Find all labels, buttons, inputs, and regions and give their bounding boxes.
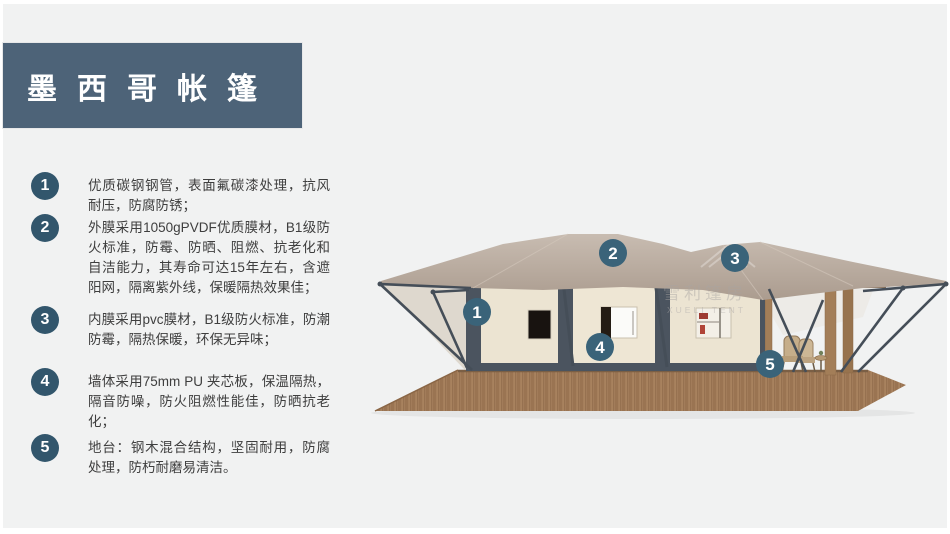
feature-item-4: 4 墙体采用75mm PU 夹芯板，保温隔热，隔音防噪，防火阻燃性能佳，防晒抗老…: [31, 368, 351, 432]
feature-item-3: 3 内膜采用pvc膜材，B1级防火标准，防潮防霉，隔热保暖，环保无异味；: [31, 306, 351, 350]
feature-text-1: 优质碳钢钢管，表面氟碳漆处理，抗风耐压，防腐防锈；: [88, 172, 330, 216]
feature-number-badge-2: 2: [31, 214, 59, 242]
svg-text:1: 1: [472, 303, 481, 322]
presentation-slide: 墨西哥帐篷 1 优质碳钢钢管，表面氟碳漆处理，抗风耐压，防腐防锈； 2 外膜采用…: [0, 0, 950, 534]
watermark-text-cn: 雪利篷房: [663, 284, 747, 303]
svg-text:5: 5: [765, 355, 774, 374]
feature-text-5: 地台：钢木混合结构，坚固耐用，防腐处理，防朽耐磨易清洁。: [88, 434, 330, 478]
feature-number-badge-5: 5: [31, 434, 59, 462]
watermark-text-en: XUELI TENT: [667, 305, 746, 315]
tent-illustration: 雪利篷房 XUELI TENT 1 2 3 4 5: [363, 215, 950, 427]
pole-joint: [944, 282, 949, 287]
tent-marker-2: 2: [599, 239, 627, 267]
feature-number-badge-1: 1: [31, 172, 59, 200]
deck-platform: [375, 370, 906, 411]
feature-item-5: 5 地台：钢木混合结构，坚固耐用，防腐处理，防朽耐磨易清洁。: [31, 434, 351, 478]
tent-diagram-svg: 雪利篷房 XUELI TENT 1 2 3 4 5: [363, 215, 950, 427]
feature-text-4: 墙体采用75mm PU 夹芯板，保温隔热，隔音防噪，防火阻燃性能佳，防晒抗老化；: [88, 368, 330, 432]
pole-joint: [901, 286, 906, 291]
page-title: 墨西哥帐篷: [3, 64, 277, 108]
feature-number-badge-4: 4: [31, 368, 59, 396]
door-opening: [601, 307, 637, 338]
slide-background: 墨西哥帐篷 1 优质碳钢钢管，表面氟碳漆处理，抗风耐压，防腐防锈； 2 外膜采用…: [3, 4, 947, 528]
tent-marker-1: 1: [463, 298, 491, 326]
svg-text:4: 4: [595, 338, 605, 357]
title-banner: 墨西哥帐篷: [3, 43, 302, 128]
svg-text:2: 2: [608, 244, 617, 263]
tent-marker-3: 3: [721, 244, 749, 272]
feature-number-badge-3: 3: [31, 306, 59, 334]
window-dark: [528, 310, 551, 339]
feature-text-2: 外膜采用1050gPVDF优质膜材，B1级防火标准，防霉、防晒、阻燃、抗老化和自…: [88, 214, 330, 298]
tent-marker-4: 4: [586, 333, 614, 361]
tent-marker-5: 5: [756, 350, 784, 378]
feature-item-1: 1 优质碳钢钢管，表面氟碳漆处理，抗风耐压，防腐防锈；: [31, 172, 351, 216]
feature-item-2: 2 外膜采用1050gPVDF优质膜材，B1级防火标准，防霉、防晒、阻燃、抗老化…: [31, 214, 351, 298]
pole-joint: [431, 290, 436, 295]
feature-text-3: 内膜采用pvc膜材，B1级防火标准，防潮防霉，隔热保暖，环保无异味；: [88, 306, 330, 350]
porch-post: [825, 285, 836, 375]
pole-joint: [378, 282, 383, 287]
svg-text:3: 3: [730, 249, 739, 268]
